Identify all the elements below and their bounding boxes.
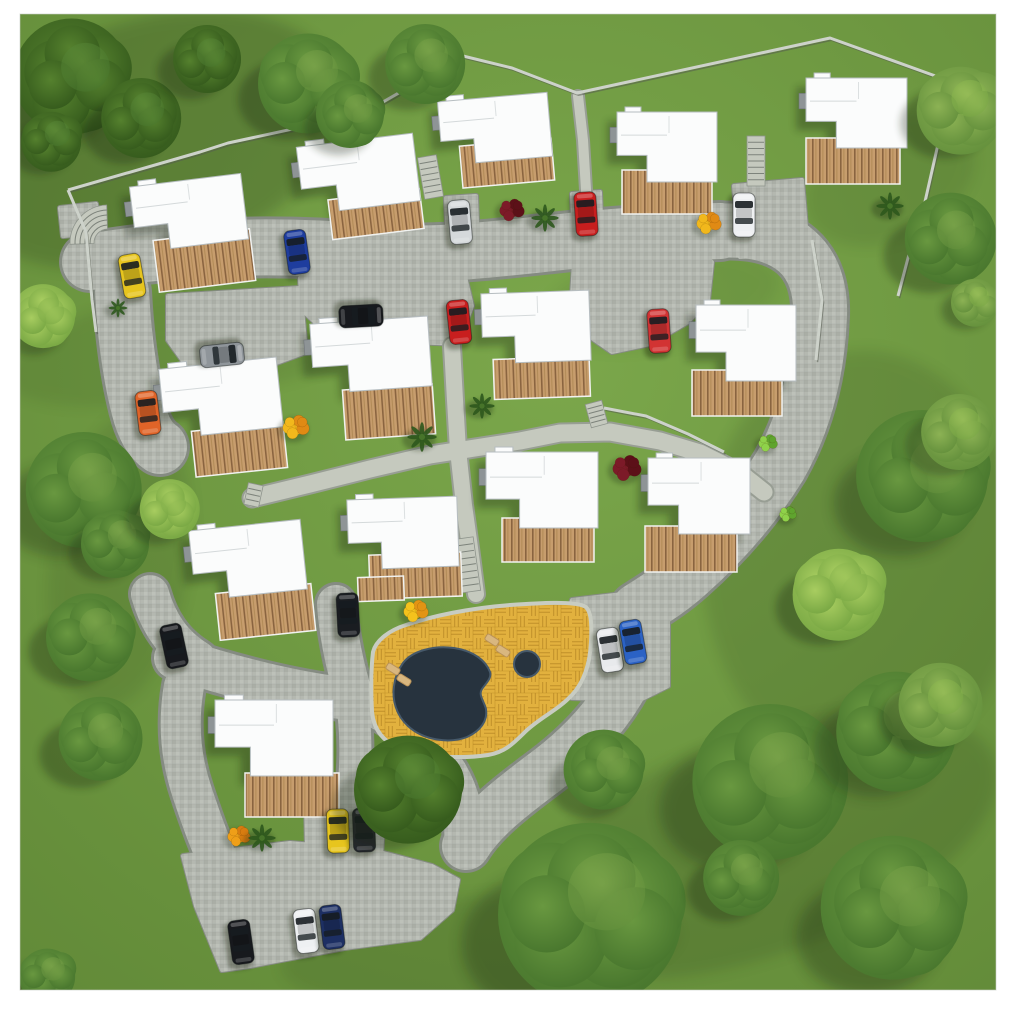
car-hood-highlight: [339, 595, 355, 600]
bush-tuft: [231, 837, 241, 847]
house-13: [638, 453, 750, 572]
tree-canopy-highlight: [68, 453, 117, 502]
site-plan-image: [0, 0, 1024, 1017]
car-roof: [450, 314, 467, 326]
car-rear-window: [329, 834, 347, 841]
tree-canopy-highlight: [951, 80, 988, 117]
car-rear-window: [735, 218, 753, 224]
palm-crown: [259, 835, 265, 841]
frame-bottom: [0, 990, 1024, 1017]
car-windshield: [735, 201, 753, 208]
tree-canopy-highlight: [37, 298, 64, 325]
car-rear-window: [339, 618, 357, 625]
tree-canopy-highlight: [161, 491, 186, 516]
bush-tuft: [701, 224, 711, 234]
tree-canopy-highlight: [749, 732, 815, 798]
palm-crown: [116, 306, 120, 310]
bush-tuft: [502, 201, 511, 210]
car-roof: [297, 923, 314, 935]
wooden-deck: [245, 773, 339, 817]
tree-canopy-highlight: [344, 94, 373, 123]
bush-tuft: [504, 211, 514, 221]
tree-canopy-highlight: [829, 563, 868, 602]
tree-canopy-highlight: [197, 38, 226, 67]
frame-left: [0, 0, 20, 1017]
car-windshield: [649, 316, 667, 324]
bush-tuft: [762, 444, 770, 452]
palm-crown: [419, 434, 425, 440]
bush-tuft: [285, 417, 295, 427]
tree-canopy-highlight: [880, 866, 940, 926]
car-rear-window: [352, 307, 359, 325]
car-trunk-highlight: [341, 309, 346, 325]
tree-canopy-highlight: [414, 38, 448, 72]
bush-tuft: [297, 417, 307, 427]
wooden-deck: [358, 576, 405, 602]
car-roof: [323, 919, 340, 931]
tree-canopy-highlight: [45, 121, 70, 146]
bush-tuft: [629, 458, 640, 469]
bush-tuft: [760, 436, 767, 443]
roof-ridge-line: [537, 296, 538, 313]
bush-tuft: [781, 508, 787, 514]
stairs: [747, 136, 765, 186]
tree-canopy-highlight: [949, 408, 981, 440]
roof-ridge-line: [404, 502, 405, 519]
bush-tuft: [617, 469, 629, 481]
tree-canopy-highlight: [61, 43, 110, 92]
car-black: [331, 592, 361, 642]
bush-tuft: [615, 458, 626, 469]
tree-canopy-highlight: [937, 211, 976, 250]
swimming-pool: [394, 647, 491, 740]
bush-tuft: [513, 201, 522, 210]
car-roof: [358, 308, 369, 325]
wooden-deck: [493, 356, 590, 399]
bush-tuft: [406, 602, 415, 611]
car-trunk-highlight: [341, 631, 357, 636]
bush-tuft: [710, 214, 719, 223]
car-rear-window: [577, 216, 595, 223]
tree-canopy-highlight: [596, 746, 630, 780]
car-roof: [451, 214, 468, 225]
bush-tuft: [287, 428, 298, 439]
car-gray: [193, 337, 245, 369]
car-red: [569, 191, 599, 242]
car-silver: [442, 199, 473, 250]
house-4: [607, 107, 717, 214]
bush-tuft: [769, 436, 776, 443]
car-red: [642, 308, 672, 359]
tree-canopy-highlight: [969, 287, 989, 307]
car-black: [333, 299, 383, 329]
bush-tuft: [789, 508, 795, 514]
house-5: [796, 73, 907, 184]
palm-crown: [479, 403, 484, 408]
tree-canopy-highlight: [88, 713, 123, 748]
tree-canopy-highlight: [731, 854, 763, 886]
car-windshield: [338, 601, 356, 609]
car-rear-window: [650, 333, 668, 340]
bush-tuft: [782, 514, 789, 521]
car-red: [441, 299, 473, 351]
car-hood-highlight: [736, 195, 752, 199]
car-windshield: [576, 199, 594, 207]
car-roof: [218, 346, 230, 363]
car-roof: [736, 208, 752, 218]
car-roof: [578, 206, 595, 217]
tree-canopy-highlight: [395, 753, 440, 798]
house-9: [686, 300, 796, 416]
car-windshield: [368, 306, 376, 324]
car-roof: [340, 608, 357, 619]
car-hood-highlight: [377, 307, 382, 323]
car-trunk-highlight: [736, 231, 752, 235]
tree-canopy-highlight: [41, 957, 65, 981]
car-roof: [651, 323, 668, 334]
tree-canopy-highlight: [79, 608, 116, 645]
bush-tuft: [699, 214, 708, 223]
frame-right: [996, 0, 1024, 1017]
car-white: [728, 193, 755, 242]
site-plan-canvas: [0, 0, 1024, 1017]
bush-tuft: [417, 602, 426, 611]
car-trunk-highlight: [331, 847, 347, 852]
frame-top: [0, 0, 1024, 14]
car-roof: [139, 405, 156, 417]
bush-tuft: [229, 828, 237, 836]
palm-crown: [542, 215, 548, 221]
tree-canopy-highlight: [928, 679, 963, 714]
spa-pool: [514, 651, 540, 677]
tree-canopy-highlight: [130, 92, 164, 126]
palm-crown: [887, 203, 893, 209]
bush-tuft: [408, 612, 418, 622]
tree-canopy-highlight: [568, 853, 645, 930]
